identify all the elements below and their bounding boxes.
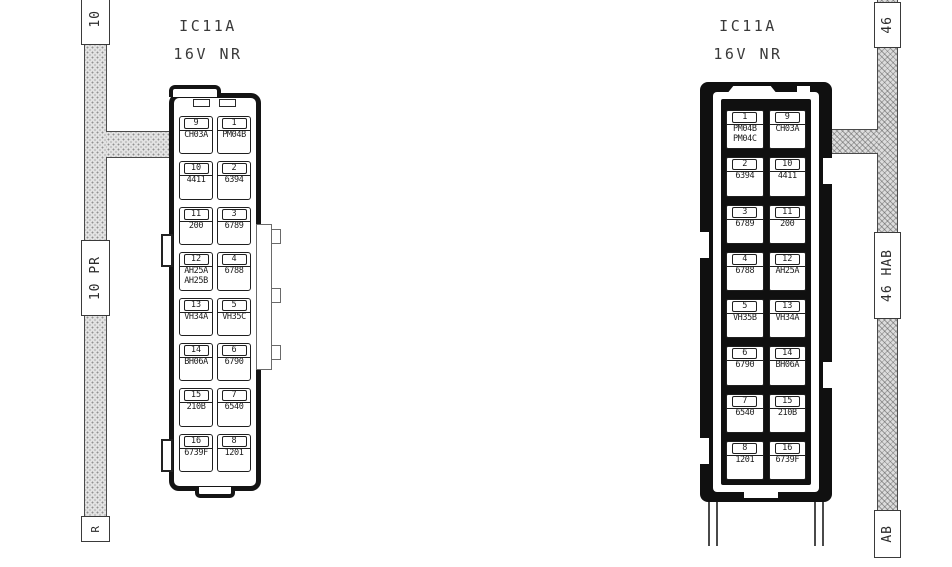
pin-wire-label: 210B	[770, 408, 806, 419]
connector-ic11a-left-view: 9CH03A1PM04B10441126394112003678912AH25A…	[169, 93, 261, 491]
pin-wire-label: 200	[180, 221, 212, 232]
pin-cell-15: 15210B	[769, 394, 807, 433]
connector-type: 16V NR	[688, 40, 808, 68]
pin-wire-label: 1201	[727, 455, 763, 466]
pin-wire-label: 6394	[218, 175, 250, 186]
pin-wire-label: 4411	[770, 171, 806, 182]
pin-cell-5: 5VH35C	[217, 298, 251, 336]
pin-number: 4	[222, 254, 247, 265]
wire-track-label-mid-left: 10 PR	[81, 240, 110, 316]
pin-cell-14: 14BH06A	[179, 343, 213, 381]
connector-id: IC11A	[688, 12, 808, 40]
pin-wire-label: 6788	[727, 266, 763, 277]
wire-track-label-mid-right: 46 HAB	[874, 232, 901, 319]
mating-lug	[271, 229, 281, 244]
housing-side-tab	[161, 439, 173, 472]
pin-number: 6	[222, 345, 247, 356]
pin-wire-label: 6739F	[770, 455, 806, 466]
pin-grid-left-view: 9CH03A1PM04B10441126394112003678912AH25A…	[179, 116, 251, 472]
pin-number: 10	[184, 163, 209, 174]
latch-mark	[193, 99, 210, 107]
pin-number: 8	[222, 436, 247, 447]
housing-side-notch	[700, 438, 709, 464]
wire-track-label-top-left: 10	[81, 0, 110, 45]
connector-type: 16V NR	[148, 40, 268, 68]
pin-cell-2: 26394	[726, 157, 764, 196]
pin-cell-11: 11200	[769, 205, 807, 244]
pin-number: 15	[184, 390, 209, 401]
pin-number: 6	[732, 348, 757, 359]
wire-track-label-text: 46 HAB	[880, 249, 895, 302]
pin-cell-7: 76540	[726, 394, 764, 433]
pin-wire-label: 4411	[180, 175, 212, 186]
pin-number: 15	[775, 396, 800, 407]
pin-cell-10: 104411	[179, 161, 213, 199]
mating-connector-profile	[256, 224, 272, 370]
pin-cell-10: 104411	[769, 157, 807, 196]
pin-wire-label: CH03A	[180, 130, 212, 141]
pin-number: 2	[732, 159, 757, 170]
pin-wire-label: 6790	[727, 360, 763, 371]
pin-cell-16: 166739F	[769, 441, 807, 480]
pin-wire-label: 6540	[727, 408, 763, 419]
pin-cell-14: 14BH06A	[769, 346, 807, 385]
pin-number: 13	[184, 300, 209, 311]
pin-number: 14	[184, 345, 209, 356]
pin-cell-12: 12AH25A AH25B	[179, 252, 213, 290]
pin-wire-label: VH34A	[180, 312, 212, 323]
pin-wire-label: 6540	[218, 402, 250, 413]
pin-cell-4: 46788	[217, 252, 251, 290]
pin-cell-13: 13VH34A	[769, 299, 807, 338]
latch-mark	[219, 99, 236, 107]
pin-cell-16: 166739F	[179, 434, 213, 472]
pin-wire-label: 200	[770, 219, 806, 230]
pin-cell-4: 46788	[726, 252, 764, 291]
housing-bottom-step	[195, 487, 234, 498]
pin-number: 9	[184, 118, 209, 129]
pin-number: 11	[775, 207, 800, 218]
pin-wire-label: 6394	[727, 171, 763, 182]
pin-number: 12	[184, 254, 209, 265]
pin-wire-label: PM04B PM04C	[727, 124, 763, 144]
connector-ic11a-right-view: 1PM04B PM04C9CH03A2639410441136789112004…	[700, 82, 832, 502]
connector-wire	[716, 502, 718, 546]
housing-top-step	[169, 85, 221, 97]
pin-cell-13: 13VH34A	[179, 298, 213, 336]
pin-cell-8: 81201	[217, 434, 251, 472]
pin-number: 12	[775, 254, 800, 265]
wire-track-label-top-right: 46	[874, 2, 901, 48]
pin-wire-label: VH35B	[727, 313, 763, 324]
pin-cell-15: 15210B	[179, 388, 213, 426]
pin-wire-label: 6789	[727, 219, 763, 230]
pin-cell-1: 1PM04B PM04C	[726, 110, 764, 149]
pin-number: 14	[775, 348, 800, 359]
pin-cell-11: 11200	[179, 207, 213, 245]
housing-top-notch	[726, 86, 778, 95]
connector-title-left: IC11A 16V NR	[148, 12, 268, 68]
pin-cell-1: 1PM04B	[217, 116, 251, 154]
pin-wire-label: VH34A	[770, 313, 806, 324]
pin-number: 4	[732, 254, 757, 265]
pin-wire-label: PM04B	[218, 130, 250, 141]
pin-cell-5: 5VH35B	[726, 299, 764, 338]
mating-lug	[271, 345, 281, 360]
pin-wire-label: 6788	[218, 266, 250, 277]
pin-cell-6: 66790	[726, 346, 764, 385]
pin-wire-label: 6790	[218, 357, 250, 368]
pin-wire-label: 1201	[218, 448, 250, 459]
housing-bottom-notch	[744, 489, 778, 498]
pin-number: 13	[775, 301, 800, 312]
pin-number: 9	[775, 112, 800, 123]
wire-track-label-text: 10	[88, 10, 103, 28]
pin-cell-3: 36789	[726, 205, 764, 244]
pin-wire-label: BH06A	[770, 360, 806, 371]
connector-id: IC11A	[148, 12, 268, 40]
pin-number: 3	[732, 207, 757, 218]
pin-wire-label: 210B	[180, 402, 212, 413]
wire-track-label-bottom-right: AB	[874, 510, 901, 558]
housing-side-notch	[823, 158, 832, 184]
wire-track-label-text: R	[89, 525, 102, 533]
pin-number: 16	[184, 436, 209, 447]
pin-cell-6: 66790	[217, 343, 251, 381]
pin-wire-label: BH06A	[180, 357, 212, 368]
pin-cell-2: 26394	[217, 161, 251, 199]
pin-cell-12: 12AH25A	[769, 252, 807, 291]
pin-grid-right-view: 1PM04B PM04C9CH03A2639410441136789112004…	[726, 110, 806, 480]
housing-side-tab	[161, 234, 173, 267]
pin-cell-9: 9CH03A	[769, 110, 807, 149]
pin-wire-label: AH25A	[770, 266, 806, 277]
pin-number: 7	[222, 390, 247, 401]
pin-number: 5	[732, 301, 757, 312]
pin-number: 8	[732, 443, 757, 454]
housing-side-notch	[823, 362, 832, 388]
wiring-diagram: 10 10 PR R IC11A 16V NR 9CH03A1PM04B1044…	[0, 0, 952, 567]
mating-lug	[271, 288, 281, 303]
housing-side-notch	[700, 232, 709, 258]
pin-number: 2	[222, 163, 247, 174]
connector-title-right: IC11A 16V NR	[688, 12, 808, 68]
pin-cell-7: 76540	[217, 388, 251, 426]
connector-wire	[814, 502, 816, 546]
housing-top-notch	[797, 86, 810, 95]
connector-wire	[708, 502, 710, 546]
pin-number: 11	[184, 209, 209, 220]
pin-cell-8: 81201	[726, 441, 764, 480]
pin-number: 1	[732, 112, 757, 123]
pin-wire-label: VH35C	[218, 312, 250, 323]
connector-wire	[822, 502, 824, 546]
pin-number: 1	[222, 118, 247, 129]
pin-cell-9: 9CH03A	[179, 116, 213, 154]
wire-track-label-bottom-left: R	[81, 516, 110, 542]
pin-cell-3: 36789	[217, 207, 251, 245]
wire-track-label-text: AB	[880, 525, 895, 543]
pin-number: 3	[222, 209, 247, 220]
wire-track-label-text: 10 PR	[88, 256, 103, 300]
pin-number: 5	[222, 300, 247, 311]
pin-wire-label: AH25A AH25B	[180, 266, 212, 286]
pin-number: 16	[775, 443, 800, 454]
wire-branch-left	[106, 131, 174, 158]
wire-track-label-text: 46	[880, 16, 895, 34]
pin-number: 7	[732, 396, 757, 407]
pin-wire-label: CH03A	[770, 124, 806, 135]
pin-number: 10	[775, 159, 800, 170]
pin-wire-label: 6739F	[180, 448, 212, 459]
wire-branch-right	[830, 129, 878, 154]
pin-wire-label: 6789	[218, 221, 250, 232]
